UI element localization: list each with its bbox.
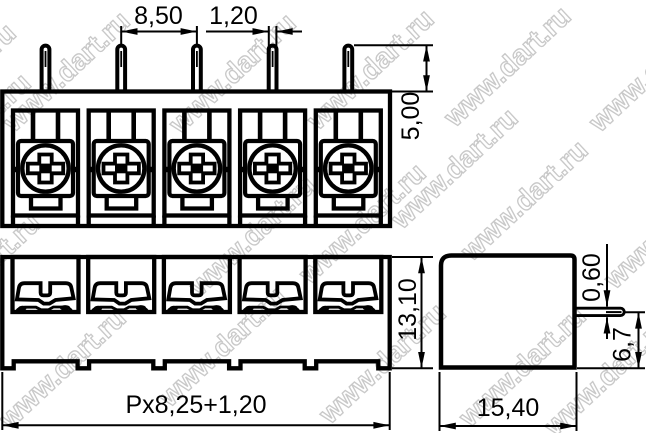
svg-text:www.dart.ru: www.dart.ru	[582, 5, 646, 138]
svg-text:www.dart.ru: www.dart.ru	[0, 302, 132, 433]
svg-text:13,10: 13,10	[394, 278, 422, 341]
svg-text:15,40: 15,40	[477, 394, 540, 422]
svg-text:Px8,25+1,20: Px8,25+1,20	[125, 391, 266, 419]
svg-text:5,00: 5,00	[397, 92, 425, 141]
svg-text:1,20: 1,20	[209, 2, 258, 30]
svg-text:0,60: 0,60	[578, 253, 606, 302]
svg-text:www.dart.ru: www.dart.ru	[312, 297, 451, 430]
svg-text:6,7: 6,7	[609, 327, 637, 362]
svg-text:8,50: 8,50	[134, 2, 183, 30]
